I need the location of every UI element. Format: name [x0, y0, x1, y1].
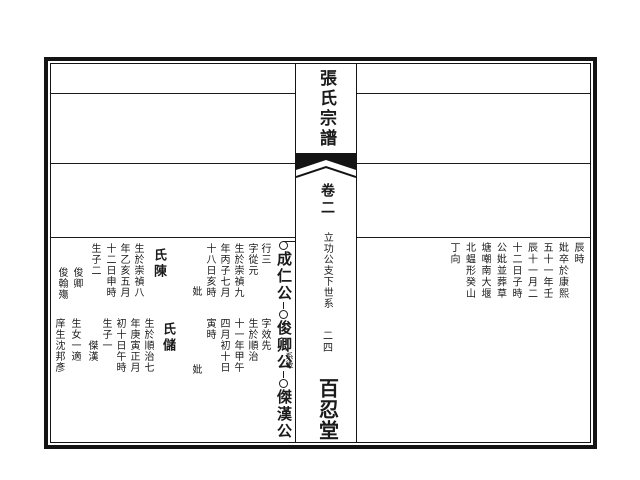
hall-name: 百忍堂	[316, 378, 337, 441]
record-column: 四月初十日	[218, 318, 229, 373]
record-column: 年乙亥五月	[118, 243, 129, 298]
record-column: 生女一適	[69, 318, 80, 362]
record-column: 十一年甲午	[232, 318, 243, 373]
son-name: 傑漢	[86, 340, 97, 362]
record-column: 行三	[259, 243, 270, 265]
record-column: 字從元	[246, 243, 257, 276]
record-column: 生子二	[89, 243, 100, 276]
text-column: 塘嘲南大堰	[477, 242, 493, 377]
wife-name: 氏陳	[151, 248, 167, 280]
lineage-connector	[283, 371, 284, 378]
text-column: 辰時	[570, 242, 586, 377]
record-column: 初十日午時	[114, 318, 125, 373]
text-column: 丁向	[446, 242, 462, 377]
page-number: 二四	[321, 330, 332, 354]
genealogy-page-scan: 張氏宗譜 卷二 立功公支下世系 二四	[0, 0, 640, 480]
lineage-node-circle	[279, 379, 288, 388]
record-column: 生於順治	[246, 318, 257, 362]
rule-line	[51, 163, 295, 164]
rule-line	[357, 237, 590, 238]
ancestor-name: 傑漢公	[274, 389, 292, 440]
record-column: 字效先	[259, 318, 270, 351]
text-column: 北蝹形癸山	[461, 242, 477, 377]
record-column: 妣	[190, 286, 201, 297]
son-name: 俊卿	[71, 267, 82, 289]
text-column: 辰十一月二	[523, 242, 539, 377]
ancestor-name: 成仁公	[274, 251, 292, 302]
record-column: 生子一	[100, 318, 111, 351]
lineage-node-circle	[279, 310, 288, 319]
record-column: 生於崇禎九	[232, 243, 243, 298]
record-column: 庠生沈邦彥	[53, 318, 64, 373]
record-column: 生於崇禎八	[132, 243, 143, 298]
record-column: 寅時	[204, 318, 215, 340]
record-column: 妣	[190, 364, 201, 375]
wife-name: 氏儲	[160, 322, 176, 354]
lineage-connector	[283, 302, 284, 309]
rule-line	[357, 163, 590, 164]
rule-line	[51, 93, 295, 94]
right-page-record-text: 辰時 妣卒於康熙 五十一年壬 辰十一月二 十二日子時 公妣並葬草 塘嘲南大堰 北…	[446, 242, 586, 377]
book-title: 張氏宗譜	[316, 69, 336, 149]
spine-column: 張氏宗譜 卷二 立功公支下世系 二四	[295, 64, 357, 442]
text-column: 公妣並葬草	[492, 242, 508, 377]
son-name: 俊翰殤	[56, 267, 67, 300]
lineage-note: 系後	[285, 352, 294, 368]
lineage-node-circle	[279, 241, 288, 250]
fishtail-icon	[296, 153, 356, 184]
page-inner-frame: 張氏宗譜 卷二 立功公支下世系 二四	[50, 63, 591, 443]
volume-label: 卷二	[318, 183, 334, 217]
text-column: 五十一年壬	[539, 242, 555, 377]
record-column: 年庚寅正月	[128, 318, 139, 373]
rule-line	[357, 93, 590, 94]
page-outer-frame: 張氏宗譜 卷二 立功公支下世系 二四	[44, 57, 597, 449]
text-column: 十二日子時	[508, 242, 524, 377]
rule-line	[51, 237, 295, 238]
record-column: 十二日申時	[104, 243, 115, 298]
record-column: 生於順治七	[142, 318, 153, 373]
record-column: 十八日亥時	[204, 243, 215, 298]
lineage-column: 成仁公 俊卿公 傑漢公	[272, 240, 294, 440]
text-column: 妣卒於康熙	[554, 242, 570, 377]
book-title-box: 張氏宗譜	[296, 64, 356, 154]
record-column: 年丙子七月	[218, 243, 229, 298]
section-label: 立功公支下世系	[321, 232, 332, 309]
